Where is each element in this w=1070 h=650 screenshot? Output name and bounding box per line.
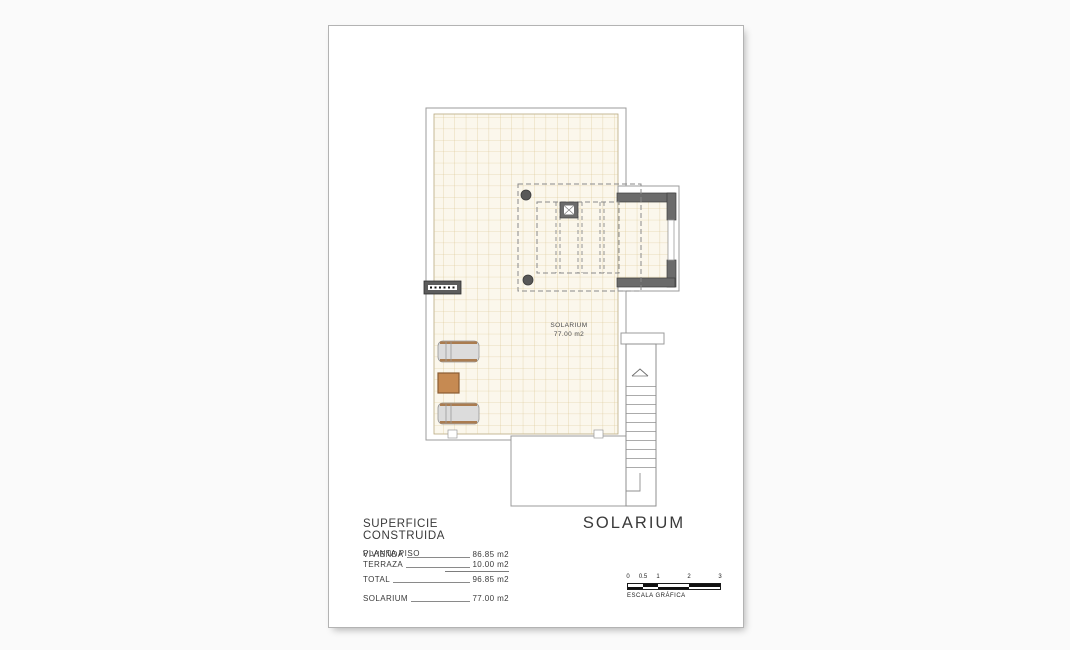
table-row: VIVIENDA 86.85 m2 [363,550,509,559]
surface-summary: SUPERFICIE CONSTRUIDA PLANTA PISO VIVIEN… [363,518,511,558]
row-value: 96.85 m2 [472,575,509,584]
scale-tick: 3 [718,574,721,580]
table-row: SOLARIUM 77.00 m2 [363,594,509,603]
leader-line [407,556,471,558]
row-label: TERRAZA [363,560,403,569]
canvas: { "plan": { "room_label": { "line1": "SO… [0,0,1070,650]
row-value: 77.00 m2 [472,594,509,603]
tiled-terrace [434,114,618,434]
staircase [621,333,664,506]
sun-lounger [438,341,479,362]
window-opening [668,220,674,260]
sun-lounger [438,403,479,424]
parapet-notch [448,430,457,438]
row-label: TOTAL [363,575,390,584]
scale-tick: 1 [656,574,659,580]
plan-title: SOLARIUM [569,514,699,533]
summary-title: SUPERFICIE CONSTRUIDA [363,518,511,542]
room-label: SOLARIUM 77.00 m2 [529,321,609,339]
sum-divider [445,571,509,572]
column-marker [521,190,531,200]
scale-bar [627,583,721,590]
row-value: 10.00 m2 [472,560,509,569]
graphic-scale: 0 0.5 1 2 3 ESCALA GRÁFICA [627,574,727,599]
ac-vent-grille [424,281,461,294]
scale-caption: ESCALA GRÁFICA [627,593,727,599]
room-name: SOLARIUM [529,321,609,330]
leader-line [411,600,470,602]
chimney [560,202,578,218]
room-area: 77.00 m2 [529,330,609,339]
row-label: SOLARIUM [363,594,408,603]
drawing-sheet: SOLARIUM 77.00 m2 SUPERFICIE CONSTRUIDA … [328,25,744,628]
parapet-notch [594,430,603,438]
scale-tick: 2 [687,574,690,580]
leader-line [393,581,470,583]
scale-tick: 0.5 [639,574,647,580]
row-label: VIVIENDA [363,550,404,559]
column-marker [523,275,533,285]
row-value: 86.85 m2 [472,550,509,559]
side-table [438,373,459,393]
table-row: TOTAL 96.85 m2 [363,575,509,584]
leader-line [406,566,470,568]
scale-tick-labels: 0 0.5 1 2 3 [627,574,727,583]
table-row: TERRAZA 10.00 m2 [363,560,509,569]
scale-tick: 0 [626,574,629,580]
